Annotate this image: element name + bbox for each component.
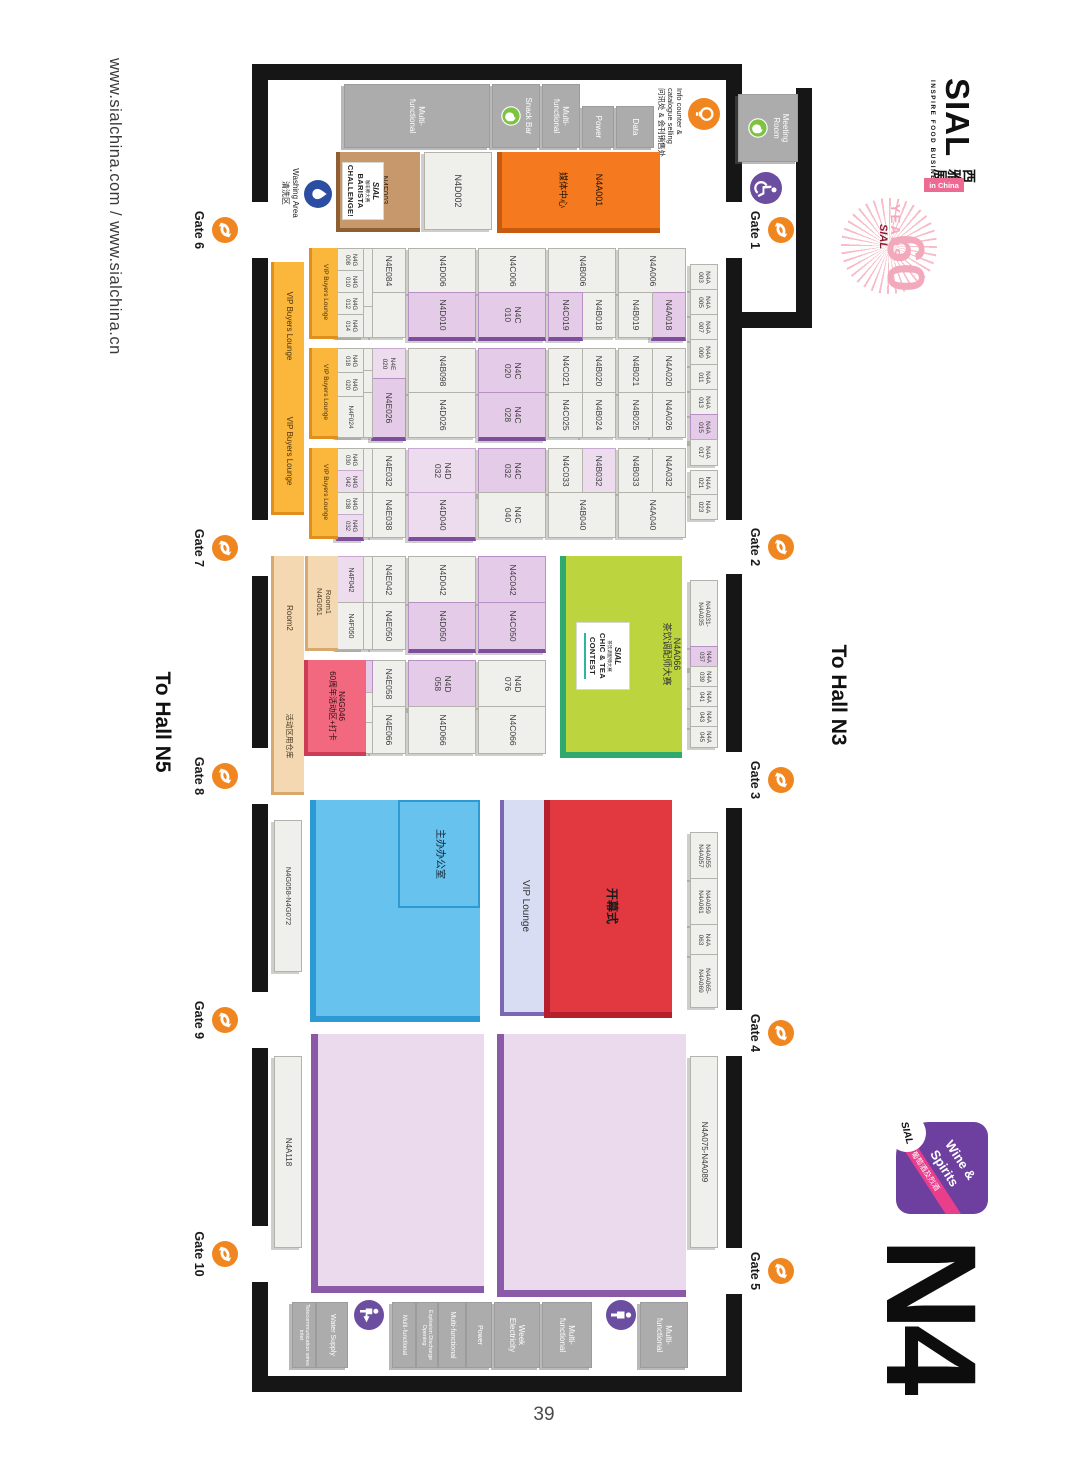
booth-n4a032: N4A032	[651, 448, 686, 494]
booth-n4f042: N4F042	[336, 556, 364, 604]
booth-n4c050: N4C050	[478, 602, 546, 653]
gate-8: Gate 8	[192, 744, 238, 808]
wall-right	[252, 1376, 742, 1392]
to-hall-n5-label: To Hall N5	[150, 612, 174, 832]
booth-n4c032: N4C032	[478, 448, 546, 497]
room2: Room2	[271, 556, 304, 683]
booth-n4g038: N4G038	[336, 492, 364, 516]
booth-n4g042: N4G042	[336, 470, 364, 494]
booth-n4b040: N4B040	[548, 492, 616, 538]
power-south: Power	[466, 1302, 492, 1368]
wall-top-2	[726, 258, 742, 520]
booth-n4c006: N4C006	[478, 248, 546, 294]
organizer-office-inner: 主办办公室	[398, 800, 480, 908]
gate-icon	[208, 535, 225, 561]
booth-n4b019: N4B019	[618, 292, 653, 338]
booth-n4e038: N4E038	[371, 492, 406, 538]
gate-10: Gate 10	[192, 1222, 238, 1286]
anniversary-years: YEARS	[888, 204, 903, 259]
vip-buyers-lounge-strip-2: VIP Buyers Lounge	[271, 390, 304, 515]
booth-n4e042: N4E042	[371, 556, 406, 604]
booth-n4e084: N4E084	[371, 248, 406, 294]
gate-label: Gate 7	[192, 516, 206, 580]
gate-icon	[208, 763, 225, 789]
booth-n4b098: N4B098	[408, 348, 476, 394]
vip-buyers-lounge-block-2: VIP Buyers Lounge	[309, 348, 338, 439]
coffee-activity-n4f003-badge: SIAL咖啡师大赛BARISTACHALLENGE!	[342, 162, 384, 220]
gate-icon	[764, 1020, 781, 1046]
booth-n4g030: N4G030	[336, 448, 364, 472]
booth-n4f050: N4F050	[336, 602, 364, 650]
info-counter-label: Info counter &catalogue selling问讯处 & 会刊销…	[657, 88, 684, 208]
booth-n4g058-n4g072: N4G058-N4G072	[274, 820, 302, 972]
tea-contest-n4a066: N4A066茶饮调配师大赛SIAL茶饮调配师大赛CHIC & TEACONTES…	[560, 556, 682, 758]
booth-n4g020: N4G020	[336, 372, 364, 398]
booth-n4g010: N4G010	[336, 270, 364, 294]
wall-alcove-top	[796, 88, 812, 328]
organizer-office: 主办办公室	[310, 800, 480, 1022]
gate-label: Gate 6	[192, 198, 206, 262]
booth-n4c028: N4C028	[478, 392, 546, 441]
wall-bottom-2	[252, 258, 268, 520]
booth-n4c020: N4C020	[478, 348, 546, 394]
gate-6: Gate 6	[192, 198, 238, 262]
data: Data	[616, 106, 654, 148]
multi-functional-5: Multi-functional	[438, 1302, 466, 1368]
gate-label: Gate 2	[748, 515, 762, 579]
booth-n4a006: N4A006	[618, 248, 686, 294]
booth-n4a063: N4A063	[690, 924, 718, 956]
restroom-male-icon	[354, 1300, 384, 1330]
booth-n4b006: N4B006	[548, 248, 616, 294]
booth-n4a011: N4A011	[690, 364, 718, 391]
booth-n4a009: N4A009	[690, 339, 718, 366]
restroom-icon	[606, 1300, 636, 1330]
sialgreen-icon	[746, 118, 768, 138]
booth-n4a017: N4A017	[690, 439, 718, 466]
booth-n4a040: N4A040	[618, 492, 686, 538]
multi-functional-1: Multi-functional	[542, 84, 580, 148]
booth-cell	[371, 292, 406, 338]
booth-n4g032: N4G032	[336, 514, 364, 541]
booth-n4a023: N4A023	[690, 494, 718, 520]
gate-2: Gate 2	[748, 515, 794, 579]
booth-n4a059-n4a061: N4A059N4A061	[690, 878, 718, 926]
sialgreen-icon	[499, 106, 521, 126]
wheelchair-icon	[750, 172, 782, 204]
water-supply: Water Supply	[316, 1302, 348, 1368]
booth-n4a018: N4A018	[651, 292, 686, 341]
booth-n4b032: N4B032	[581, 448, 616, 494]
booth-n4a013: N4A013	[690, 389, 718, 416]
booth-n4d010: N4D010	[408, 292, 476, 341]
booth-n4a041: N4A041	[690, 686, 718, 708]
booth-n4g018: N4G018	[336, 348, 364, 374]
gate-icon	[764, 534, 781, 560]
power-north: Power	[582, 106, 614, 148]
gate-label: Gate 10	[192, 1222, 206, 1286]
wall-alcove-right	[742, 312, 796, 328]
booth-n4e050: N4E050	[371, 602, 406, 650]
booth-n4d050: N4D050	[408, 602, 476, 653]
info-counter-icon	[688, 98, 720, 130]
booth-n4e020: N4E020	[371, 348, 406, 380]
opening-ceremony: 开幕式	[544, 800, 672, 1018]
booth-n4e026: N4E026	[371, 378, 406, 441]
multi-functional-6: Multi-functional	[392, 1302, 416, 1368]
booth-n4a031-n4a035: N4A031-N4A035	[690, 580, 718, 648]
booth-n4c040: N4C040	[478, 492, 546, 538]
wine-and-spirits-logo: Wine & Spirits 葡萄酒及烈酒 SIAL	[896, 1122, 988, 1214]
sial-60-years-emblem: 60 YEARS SIAL	[841, 198, 937, 294]
gate-icon	[764, 1258, 781, 1284]
booth-n4e032: N4E032	[371, 448, 406, 494]
gate-1: Gate 1	[748, 198, 794, 262]
wall-top-3	[726, 574, 742, 752]
booth-n4c019: N4C019	[548, 292, 583, 341]
booth-n4g008: N4G008	[336, 248, 364, 272]
booth-n4d006: N4D006	[408, 248, 476, 294]
website-url: www.sialchina.com / www.sialchina.cn	[105, 58, 124, 355]
booth-n4a065-n4a069: N4A065-N4A069	[690, 954, 718, 1008]
gate-5: Gate 5	[748, 1239, 794, 1303]
telecommunication-wires-inlet: Telecommunication wires inlet	[292, 1302, 316, 1368]
vip-buyers-lounge-strip-1: VIP Buyers Lounge	[271, 262, 304, 393]
gate-label: Gate 4	[748, 1001, 762, 1065]
gate-7: Gate 7	[192, 516, 238, 580]
booth-n4f024: N4F024	[336, 396, 364, 438]
coffee-activity-n4f003: N4F003咖啡活动区SIAL咖啡师大赛BARISTACHALLENGE!	[336, 152, 420, 232]
page-number: 39	[524, 1404, 564, 1426]
booth-n4a020: N4A020	[651, 348, 686, 394]
snack-bar: Snack Bar	[492, 84, 540, 148]
booth-n4b025: N4B025	[618, 392, 653, 438]
booth-n4b018: N4B018	[581, 292, 616, 338]
booth-n4d066: N4D066	[408, 706, 476, 754]
gate-label: Gate 1	[748, 198, 762, 262]
gate-icon	[208, 1241, 225, 1267]
booth-n4a055-n4a057: N4A055N4A057	[690, 832, 718, 880]
wall-left	[252, 64, 742, 80]
booth-n4b021: N4B021	[618, 348, 653, 394]
tea-contest-n4a066-badge: SIAL茶饮调配师大赛CHIC & TEACONTEST	[576, 622, 630, 690]
booth-n4a043: N4A043	[690, 706, 718, 728]
gate-icon	[208, 1007, 225, 1033]
booth-n4d032: N4D032	[408, 448, 476, 494]
booth-n4d058: N4D058	[408, 660, 476, 711]
booth-n4c033: N4C033	[548, 448, 583, 494]
multi-functional-3: Multi-functional	[640, 1302, 688, 1368]
booth-n4d002: N4D002	[424, 152, 492, 230]
vip-buyers-lounge-block-1: VIP Buyers Lounge	[309, 248, 338, 339]
booth-n4c021: N4C021	[548, 348, 583, 394]
wall-bottom-5	[252, 1048, 268, 1226]
meeting-room: MeetingRoom	[738, 94, 798, 162]
booth-n4b024: N4B024	[581, 392, 616, 438]
multi-functional-4: Multi-functional	[542, 1302, 592, 1368]
washing-area-icon	[304, 180, 332, 208]
booth-n4c025: N4C025	[548, 392, 583, 438]
booth-n4e058: N4E058	[371, 660, 406, 708]
vip-buyers-lounge-block-3: VIP Buyers Lounge	[309, 448, 338, 539]
booth-n4a005: N4A005	[690, 289, 718, 316]
activity-warehouse: 活动区用仓库	[271, 680, 304, 795]
booth-n4a045: N4A045	[690, 726, 718, 748]
vip-lounge: VIP Lounge	[500, 800, 546, 1016]
wall-top-4	[726, 808, 742, 1010]
gate-icon	[208, 217, 225, 243]
anniversary-sial: SIAL	[877, 224, 889, 249]
booth-n4c066: N4C066	[478, 706, 546, 754]
booth-n4c010: N4C010	[478, 292, 546, 341]
gate-icon	[764, 217, 781, 243]
booth-n4e066: N4E066	[371, 706, 406, 754]
booth-n4g014: N4G014	[336, 314, 364, 338]
to-hall-n3-label: To Hall N3	[826, 590, 850, 800]
gate-label: Gate 8	[192, 744, 206, 808]
anniversary-zone-n4g046: N4G04660周年活动区+打卡	[304, 660, 366, 756]
gate-label: Gate 3	[748, 748, 762, 812]
booth-n4b020: N4B020	[581, 348, 616, 394]
booth-n4a075-n4a089: N4A075-N4A089	[690, 1056, 718, 1248]
media-center: N4A001媒体中心	[497, 152, 660, 233]
booth-n4a118: N4A118	[274, 1056, 302, 1248]
booth-n4a026: N4A026	[651, 392, 686, 438]
gate-9: Gate 9	[192, 988, 238, 1052]
in-china-badge: in China	[924, 178, 964, 192]
wall-bottom-3	[252, 576, 268, 748]
wall-bottom-4	[252, 804, 268, 992]
booth-n4d040: N4D040	[408, 492, 476, 541]
booth-n4d042: N4D042	[408, 556, 476, 604]
gate-label: Gate 9	[192, 988, 206, 1052]
washing-area-label: Washing Area清洗区	[281, 138, 300, 248]
booth-n4b033: N4B033	[618, 448, 653, 494]
booth-n4d026: N4D026	[408, 392, 476, 438]
hall-number: N4	[857, 1238, 1004, 1390]
booth-n4a007: N4A007	[690, 314, 718, 341]
booth-n4a003: N4A003	[690, 264, 718, 291]
booth-n4d076: N4D076	[478, 660, 546, 708]
booth-n4a021: N4A021	[690, 470, 718, 496]
gate-3: Gate 3	[748, 748, 794, 812]
hall-block-west	[311, 1034, 484, 1293]
room1: Room1N4G051	[305, 556, 338, 651]
hall-block-east	[497, 1034, 686, 1297]
hall-n4-floor-plan: SIAL INSPIRE FOOD BUSINESS 西雅展 in China …	[0, 0, 1080, 1466]
wall-bottom-1	[252, 64, 268, 202]
booth-n4a039: N4A039	[690, 666, 718, 688]
gate-4: Gate 4	[748, 1001, 794, 1065]
sial-logo: SIAL	[938, 78, 976, 157]
gate-label: Gate 5	[748, 1239, 762, 1303]
explosion-discharge-opening: Explosion Discharge Opening	[416, 1302, 438, 1368]
week-electricity: WeekElectricity	[494, 1302, 540, 1368]
gate-icon	[764, 767, 781, 793]
booth-n4g012: N4G012	[336, 292, 364, 316]
wall-top-5	[726, 1056, 742, 1248]
booth-n4c042: N4C042	[478, 556, 546, 604]
multi-functional-2: Multi-functional	[344, 84, 490, 148]
